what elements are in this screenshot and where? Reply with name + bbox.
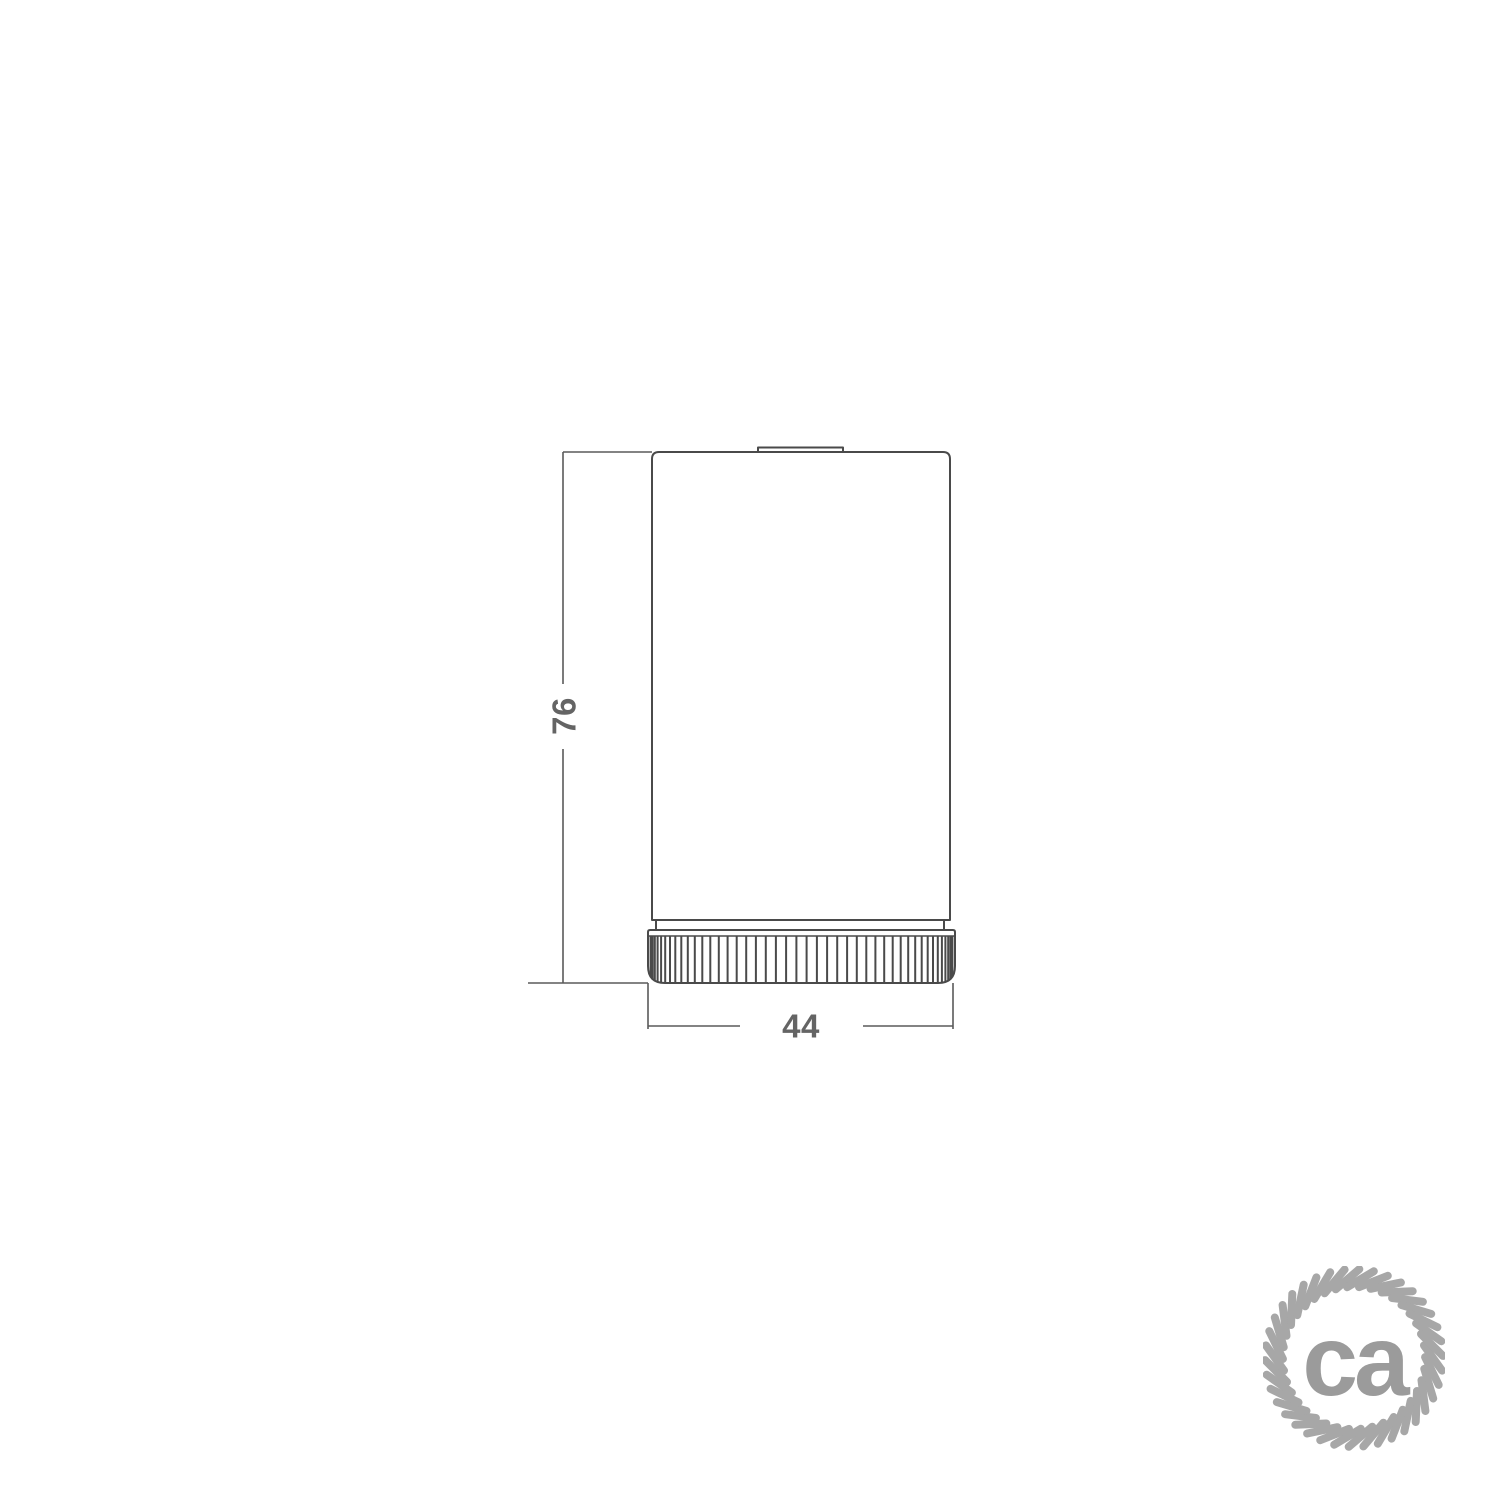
rope-strand bbox=[1422, 1380, 1426, 1411]
cylinder-body bbox=[652, 452, 950, 920]
canvas: 76 44 ca bbox=[0, 0, 1500, 1500]
rope-strand bbox=[1382, 1291, 1413, 1292]
rope-strand bbox=[1283, 1305, 1287, 1336]
neck bbox=[656, 921, 944, 930]
lamp-holder-outline bbox=[648, 448, 955, 984]
dimension-lines bbox=[528, 452, 953, 1029]
brand-logo-text: ca bbox=[1302, 1311, 1405, 1411]
knurl-ridges bbox=[651, 936, 953, 983]
rope-strand bbox=[1416, 1391, 1417, 1422]
brand-logo: ca bbox=[1263, 1266, 1445, 1452]
rope-strand bbox=[1295, 1424, 1326, 1425]
rope-strand bbox=[1392, 1298, 1423, 1302]
rope-strand bbox=[1291, 1294, 1292, 1325]
width-dimension-label: 44 bbox=[782, 1010, 820, 1043]
height-dimension-label: 76 bbox=[548, 697, 581, 735]
